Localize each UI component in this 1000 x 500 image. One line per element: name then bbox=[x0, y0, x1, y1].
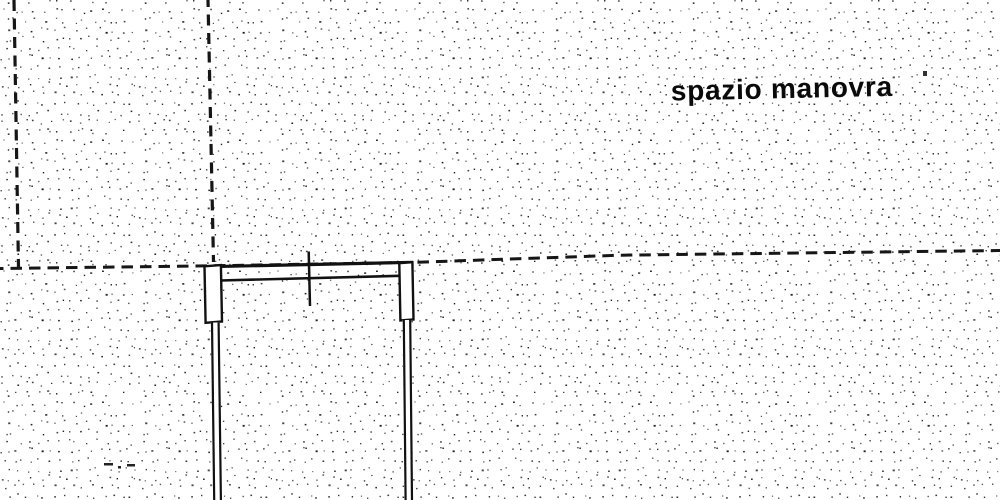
svg-text:spazio manovra: spazio manovra bbox=[670, 71, 893, 107]
